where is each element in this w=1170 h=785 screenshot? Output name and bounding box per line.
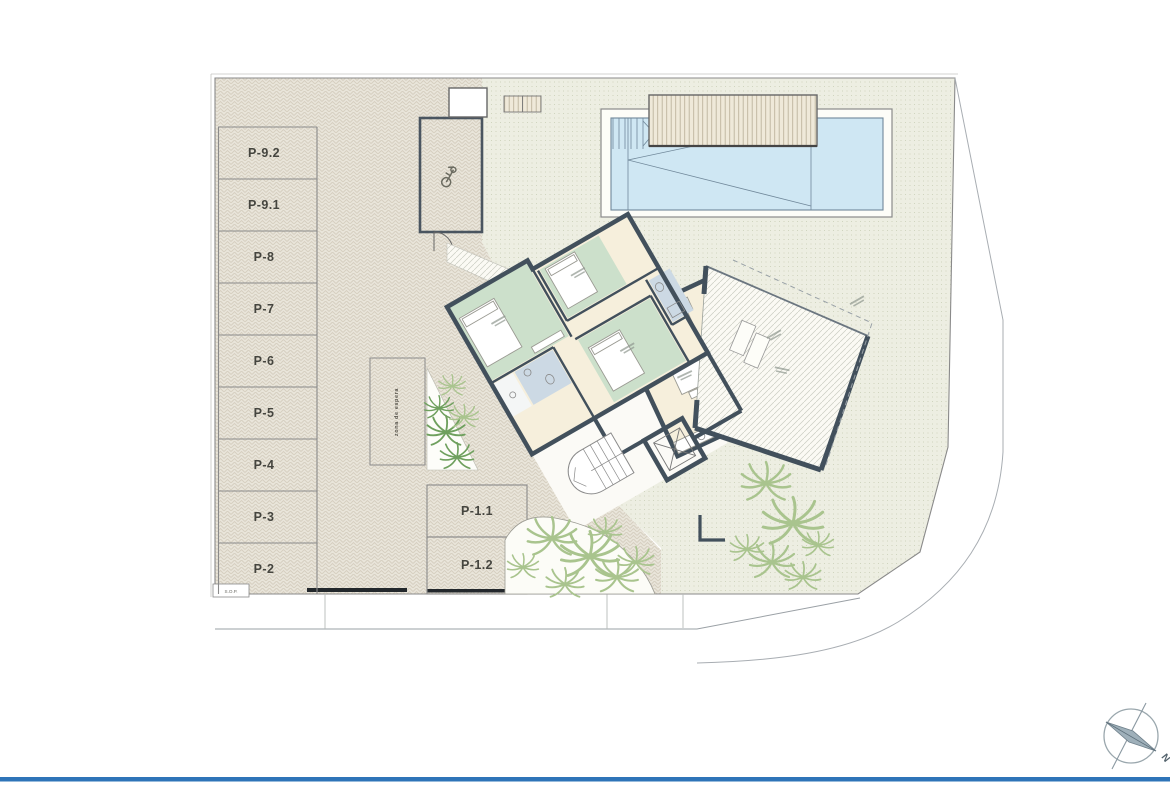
waiting-zone-label: zona de espera xyxy=(394,388,400,436)
compass-rose-icon: N xyxy=(1104,703,1170,769)
pergola-deck xyxy=(649,95,817,146)
boundary-wall-segment-1 xyxy=(307,588,407,592)
sop-label: S.O.P. xyxy=(225,589,238,594)
site-plan: S.O.P. P-9.2 P-9.1 P-8 P-7 P-6 P-5 P-4 P… xyxy=(0,0,1170,785)
parking-stall-label: P-5 xyxy=(254,406,275,420)
footer-accent-line xyxy=(0,777,1170,782)
parking-stall-label: P-4 xyxy=(254,458,275,472)
site-plan-page: S.O.P. P-9.2 P-9.1 P-8 P-7 P-6 P-5 P-4 P… xyxy=(0,0,1170,785)
parking-stall-label: P-6 xyxy=(254,354,275,368)
parking-stall-label: P-9.2 xyxy=(248,146,280,160)
vent-grate xyxy=(504,96,541,112)
utility-box xyxy=(449,88,487,117)
parking-stall-label: P-9.1 xyxy=(248,198,280,212)
parking-stall-label: P-8 xyxy=(254,250,275,264)
parking-stall-label: P-7 xyxy=(254,302,275,316)
waiting-zone-box: zona de espera xyxy=(370,358,425,465)
parking-stall-label: P-1.1 xyxy=(461,504,493,518)
north-label: N xyxy=(1159,752,1170,764)
parking-stall-label: P-3 xyxy=(254,510,275,524)
moto-shed xyxy=(420,118,482,251)
parking-stall-label: P-2 xyxy=(254,562,275,576)
parking-stall-label: P-1.2 xyxy=(461,558,493,572)
